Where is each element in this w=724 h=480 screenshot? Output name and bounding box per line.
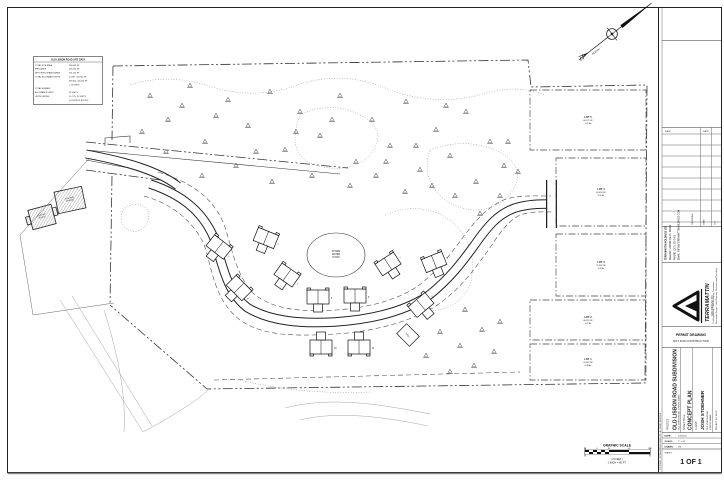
lots-layer: LOT 566,271 SF1.52 AcLOT 461,420 SF1.41 …	[530, 90, 646, 380]
conifer-tree-icon	[480, 327, 485, 331]
conifer-tree-icon	[498, 319, 503, 323]
conifer-tree-icon	[464, 109, 469, 113]
house-number: 4	[246, 298, 249, 301]
duplex-house: 11	[348, 332, 375, 356]
house-number: 1	[227, 256, 230, 259]
meta-label: SCALE:	[665, 440, 673, 443]
conifer-tree-icon	[444, 103, 449, 107]
lot-area-sf: 55,847 SF	[596, 265, 606, 267]
pond: STORMWATERPOND	[307, 233, 365, 277]
site-table-value: 24 UNITS	[69, 92, 78, 94]
site-table-value: 761,550 SF	[69, 73, 80, 75]
lot: LOT 566,271 SF1.52 Ac	[530, 90, 646, 150]
rev-date-header-left: DATE	[665, 130, 671, 133]
firm-logo-icon: TERRAMATTIN HOLDINGS LTD	[674, 283, 714, 323]
conifer-tree-icon	[506, 139, 511, 143]
site-table-label: NET DEVELOPABLE AREA	[35, 72, 60, 75]
scale-tick: 0	[596, 448, 598, 450]
conifer-tree-icon	[388, 143, 393, 147]
project-address: OLD LISBON ROAD, LISBON, MAINE	[678, 394, 681, 430]
conifer-tree-icon	[418, 167, 423, 171]
sheet-title-label: SHEET TITLE:	[683, 414, 686, 430]
conifer-tree-icon	[140, 129, 145, 133]
house-number: 8	[446, 257, 449, 260]
rev-col-date: DATE	[703, 219, 706, 225]
sheet-title: CONCEPT PLAN	[688, 390, 694, 430]
site-table-value: 1 UNIT / 40,000 SF	[69, 77, 87, 79]
firm-contact-line: PHONE: (207) 353-0000	[674, 234, 676, 260]
conifer-tree-icon	[246, 123, 251, 127]
site-plan-sheet: LOT 566,271 SF1.52 AcLOT 461,420 SF1.41 …	[0, 0, 724, 480]
site-table-value: 968,024 SF	[69, 65, 80, 67]
conifer-tree-icon	[294, 129, 299, 133]
conifer-tree-icon	[448, 153, 453, 157]
conifer-tree-icon	[374, 173, 379, 177]
meta-value: 1" = 60'	[678, 441, 686, 443]
rev-col-revisions: REVISIONS	[692, 213, 694, 225]
conifer-tree-icon	[214, 113, 219, 117]
house-number: 2	[277, 244, 280, 247]
conifer-tree-icon	[414, 143, 419, 147]
lot-area-sf: 41,867 SF	[583, 362, 593, 364]
site-table-value: = 24 UNITS	[69, 84, 80, 86]
firm-contact-line: EMAIL: INFO@TERRAMATTINHOLDINGS.COM	[678, 210, 681, 260]
revision-table: DATE DATE REVISIONSDATENO.	[662, 130, 722, 225]
lot: LOT 141,867 SF0.96 Ac	[530, 344, 646, 380]
rev-date-header-right: DATE	[703, 130, 709, 133]
duplex-house: 2	[250, 226, 283, 258]
house-number: 3	[296, 283, 299, 286]
lot-name: LOT 5	[584, 115, 592, 119]
parcel-boundary	[110, 60, 647, 389]
lot-area-ac: 1.07 Ac	[585, 322, 592, 325]
duplex-house: 3	[269, 261, 304, 296]
lot-area-sf: 61,420 SF	[596, 192, 606, 194]
site-table-title: OLD LISBON ROAD SITE DATA	[51, 59, 85, 62]
duplex-house: 6	[344, 287, 370, 311]
site-table-label: TOTAL NUMBER	[35, 87, 51, 90]
conifer-tree-icon	[430, 183, 435, 187]
pond-label: STORMWATERPOND	[332, 250, 341, 259]
sheet-number: 1 OF 1	[680, 459, 702, 466]
conifer-tree-icon	[330, 117, 335, 121]
lot-area-ac: 1.52 Ac	[585, 122, 592, 125]
house-number: 11	[372, 348, 375, 350]
conifer-tree-icon	[180, 103, 185, 107]
sheet-border	[8, 8, 722, 473]
client-address-2: LISBON, MAINE	[709, 414, 712, 430]
client-address-1: OLD LISBON ROAD	[706, 410, 709, 430]
conifer-tree-icon	[488, 139, 493, 143]
house-number: 7	[399, 257, 402, 260]
client-label: CLIENT:	[695, 421, 698, 430]
lot-area-ac: 1.28 Ac	[598, 267, 605, 270]
project-label: PROJECT:	[667, 418, 670, 430]
conifer-tree-icon	[438, 329, 443, 333]
plan-drawing: LOT 566,271 SF1.52 AcLOT 461,420 SF1.41 …	[20, 60, 647, 432]
conifer-tree-icon	[478, 211, 483, 215]
scale-tick: 30	[608, 448, 611, 450]
svg-text:NOT FOR CONSTRUCTION: NOT FOR CONSTRUCTION	[673, 339, 709, 343]
conifer-tree-icon	[458, 343, 463, 347]
north-arrow-icon: NORTH	[574, 0, 658, 66]
project-number: PROJECT NO. 24105	[716, 410, 718, 430]
conifer-tree-icon	[254, 149, 259, 153]
firm-services-line: Stormwater Design - Land Planning - Envi…	[715, 268, 718, 324]
lot-area-sf: 66,271 SF	[583, 120, 593, 122]
conifer-tree-icon	[166, 117, 171, 121]
existing-garage: EXISTINGGARAGE	[54, 186, 86, 213]
site-table-value: 206,474 SF	[69, 69, 80, 71]
duplex-house: 5	[307, 288, 333, 312]
graphic-scale-ratio: 1 INCH = 60 FT.	[608, 461, 627, 465]
existing-road	[86, 136, 348, 180]
sheet-label: SHEET:	[665, 453, 673, 455]
duplex-house: 7	[374, 248, 409, 282]
meta-value: 10/15/24	[678, 436, 687, 438]
scale-tick: 60	[628, 448, 631, 450]
conifer-tree-icon	[298, 109, 303, 113]
scale-tick: 30	[584, 448, 587, 450]
conifer-tree-icon	[270, 179, 275, 183]
lot-area-ac: 0.96 Ac	[585, 364, 592, 367]
permit-note: PERMIT DRAWING NOT FOR CONSTRUCTION	[673, 333, 709, 343]
site-table-value: 5 LOTS, 22 UNITS	[69, 96, 86, 98]
firm-services-line: Civil Engineering - Land Surveying - Exc…	[712, 282, 715, 324]
meta-rows: DATE:10/15/24SCALE:1" = 60'DRAWN:TM	[665, 435, 688, 449]
conifer-tree-icon	[283, 147, 288, 151]
svg-text:PERMIT DRAWING: PERMIT DRAWING	[676, 333, 707, 337]
meta-value: TM	[678, 447, 681, 449]
site-table-label: WETLANDS	[35, 68, 47, 71]
conifer-tree-icon	[268, 89, 273, 93]
conifer-tree-icon	[226, 97, 231, 101]
conifer-tree-icon	[498, 193, 503, 197]
firm-services: Civil Engineering - Land Surveying - Exc…	[712, 268, 718, 324]
lot: LOT 246,512 SF1.07 Ac	[530, 300, 646, 340]
site-table-value: 968,024 / 40,000 SF	[69, 80, 88, 82]
conifer-tree-icon	[434, 127, 439, 131]
conifer-tree-icon	[463, 307, 468, 311]
conifer-tree-icon	[310, 173, 315, 177]
lot-name: LOT 1	[584, 357, 592, 361]
meta-label: DATE:	[665, 435, 672, 438]
lot-area-sf: 46,512 SF	[583, 320, 593, 322]
lot-name: LOT 4	[597, 187, 605, 191]
sheet-number-box: SHEET: 1 OF 1	[665, 453, 702, 467]
lot-area-ac: 1.41 Ac	[598, 194, 605, 197]
site-table-label: UNITS SHOWN	[35, 96, 50, 98]
conifer-tree-icon	[403, 189, 408, 193]
conifer-tree-icon	[502, 163, 507, 167]
well-structure: WELL	[397, 324, 420, 347]
conifer-tree-icon	[203, 139, 208, 143]
trees-layer	[140, 83, 521, 373]
conifer-tree-icon	[354, 159, 359, 163]
conifer-tree-icon	[404, 99, 409, 103]
existing-house: EXISTINGHOUSE	[24, 203, 60, 231]
site-table-value: (11 DUPLEX BLDGS)	[69, 100, 89, 102]
conifer-tree-icon	[148, 93, 153, 97]
conifer-tree-icon	[453, 193, 458, 197]
site-table-label: TOTAL SITE AREA	[35, 64, 53, 67]
site-data-table: OLD LISBON ROAD SITE DATA TOTAL SITE ARE…	[34, 57, 103, 105]
graphic-scale: GRAPHIC SCALE ( IN FEET ) 1 INCH = 60 FT…	[584, 444, 653, 465]
title-block: COPYRIGHT - TERRAMATTIN HOLDINGS LTD - A…	[659, 8, 722, 473]
firm-contact-line: MAILING: LISBON FALLS, MAINE	[669, 224, 672, 260]
project-name: OLD LISBON ROAD SUBDIVISION	[673, 349, 679, 430]
house-number: 10	[334, 348, 337, 350]
conifer-tree-icon	[424, 353, 429, 357]
copyright-line: COPYRIGHT - TERRAMATTIN HOLDINGS LTD - A…	[659, 412, 662, 470]
firm-contact: TERRAMATTIN HOLDINGS LTDMAILING: LISBON …	[665, 210, 681, 260]
graphic-scale-units: ( IN FEET )	[611, 459, 623, 461]
conifer-tree-icon	[348, 183, 353, 187]
conifer-tree-icon	[474, 179, 479, 183]
house-number: 6	[368, 297, 370, 299]
north-label: NORTH	[591, 47, 601, 56]
lot-name: LOT 2	[584, 315, 592, 319]
conifer-tree-icon	[188, 83, 193, 87]
conifer-tree-icon	[492, 349, 497, 353]
house-number: 5	[331, 298, 333, 300]
conifer-tree-icon	[338, 93, 343, 97]
conifer-tree-icon	[370, 117, 375, 121]
lot-name: LOT 3	[597, 260, 605, 264]
meta-label: DRAWN:	[665, 446, 674, 449]
project-info: PROJECT: OLD LISBON ROAD SUBDIVISION OLD…	[667, 349, 719, 430]
lot: LOT 461,420 SF1.41 Ac	[556, 158, 646, 226]
site-table-label: TOTAL ALLOWABLE UNITS	[35, 76, 61, 79]
graphic-scale-title: GRAPHIC SCALE	[603, 444, 632, 448]
conifer-tree-icon	[200, 173, 205, 177]
conifer-tree-icon	[448, 369, 453, 373]
site-table-label: ALLOWABLE UNITS	[35, 91, 54, 94]
conifer-tree-icon	[384, 159, 389, 163]
lot: LOT 355,847 SF1.28 Ac	[556, 234, 646, 296]
scale-tick: 120	[648, 448, 652, 450]
conifer-tree-icon	[472, 363, 477, 367]
duplex-house: 10	[310, 332, 337, 356]
rev-col-no: NO.	[715, 221, 717, 225]
conifer-tree-icon	[318, 133, 323, 137]
client-name: JOSH STOEHNER	[700, 390, 705, 430]
firm-contact-line: TERRAMATTIN HOLDINGS LTD	[665, 226, 668, 260]
